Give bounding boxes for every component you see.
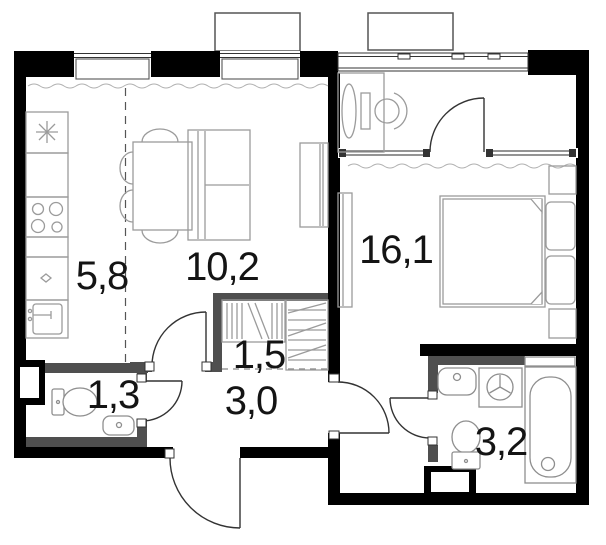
window-icon <box>220 51 300 79</box>
washing-machine-icon <box>479 368 522 407</box>
wc-bottom-wall <box>17 437 143 448</box>
kitchen-cabinet <box>26 153 68 197</box>
kitchen-area-label: 5,8 <box>76 254 129 298</box>
pillow-icon <box>546 256 575 304</box>
bathroom-top-lining <box>428 356 525 365</box>
door-swing-icon <box>142 381 182 421</box>
cooktop-knob-icon <box>41 274 51 282</box>
bed-icon <box>440 196 545 307</box>
door-jamb-marker <box>428 391 437 399</box>
right-wall <box>576 50 589 505</box>
wardrobe-icon <box>338 193 352 307</box>
hallway-area-label: 3,0 <box>225 379 278 423</box>
closet-area-label: 1,5 <box>233 333 286 377</box>
door-swing-icon <box>152 312 206 366</box>
balconies <box>215 13 453 51</box>
loggia-bedroom-window <box>338 148 578 158</box>
floor-plan-canvas: 5,8 10,2 16,1 1,3 1,5 3,0 3,2 <box>0 0 606 545</box>
chair-icon <box>120 152 133 184</box>
sofa-icon <box>188 130 250 240</box>
chair-icon <box>142 230 178 243</box>
living-room-furniture <box>120 129 328 243</box>
keyboard-icon <box>361 93 370 129</box>
wc-area-label: 1,3 <box>87 373 140 417</box>
bathtub-icon <box>525 357 576 483</box>
bathroom-left-wall <box>428 445 438 462</box>
stove-hob-icon <box>26 197 68 237</box>
nightstand-icon <box>549 309 576 338</box>
bottom-wall <box>14 447 173 458</box>
monitor-icon <box>342 84 356 138</box>
living-room-area-label: 10,2 <box>185 245 259 289</box>
door-swing-icon <box>338 382 389 433</box>
curtain-wave <box>28 84 328 88</box>
door-swing-icon <box>170 458 240 528</box>
door-jamb-marker <box>329 431 339 439</box>
shelf-unit-icon <box>286 300 328 370</box>
loggia-glazing <box>338 51 528 73</box>
closet-left-wall <box>213 293 222 372</box>
door-jamb-marker <box>202 362 211 371</box>
door-jamb-marker <box>428 437 437 445</box>
loggia-furniture <box>338 73 407 152</box>
washbasin-icon <box>103 416 134 435</box>
door-jamb-marker <box>145 362 154 371</box>
doors <box>137 98 484 528</box>
chair-icon <box>120 190 133 222</box>
stove-hood-icon <box>36 121 58 143</box>
bathroom-left-wall <box>428 356 438 393</box>
door-jamb-marker <box>165 449 174 458</box>
balcony-icon <box>215 13 300 51</box>
hall-bedroom-partition <box>328 433 340 503</box>
balcony-icon <box>368 13 453 50</box>
floor-plan: 5,8 10,2 16,1 1,3 1,5 3,0 3,2 <box>0 0 606 545</box>
bathroom-shaft-niche <box>431 472 469 492</box>
pillow-icon <box>546 202 575 250</box>
bottom-wall <box>240 447 328 458</box>
office-chair-icon <box>375 93 407 129</box>
kitchen-cabinet <box>26 237 68 257</box>
kitchen-sink-icon <box>28 304 62 334</box>
top-wall <box>14 51 74 77</box>
bedroom-area-label: 16,1 <box>359 228 433 272</box>
window-icon <box>74 51 151 79</box>
chair-icon <box>142 129 178 142</box>
top-wall <box>151 51 220 77</box>
washbasin-icon <box>438 368 476 395</box>
bedroom-bathroom-wall <box>420 344 588 356</box>
dining-table-icon <box>133 142 192 230</box>
door-swing-icon <box>390 398 430 438</box>
door-jamb-marker <box>329 374 339 382</box>
wc-shaft-niche <box>20 367 39 398</box>
bathroom-area-label: 3,2 <box>475 420 528 464</box>
curtain-wave <box>348 164 576 168</box>
door-swing-icon <box>430 98 484 152</box>
door-jamb-marker <box>137 419 146 427</box>
kitchen-cabinet <box>26 257 68 300</box>
nightstand-icon <box>549 166 576 194</box>
tv-cabinet-icon <box>300 143 328 227</box>
kitchen-units <box>26 112 68 338</box>
